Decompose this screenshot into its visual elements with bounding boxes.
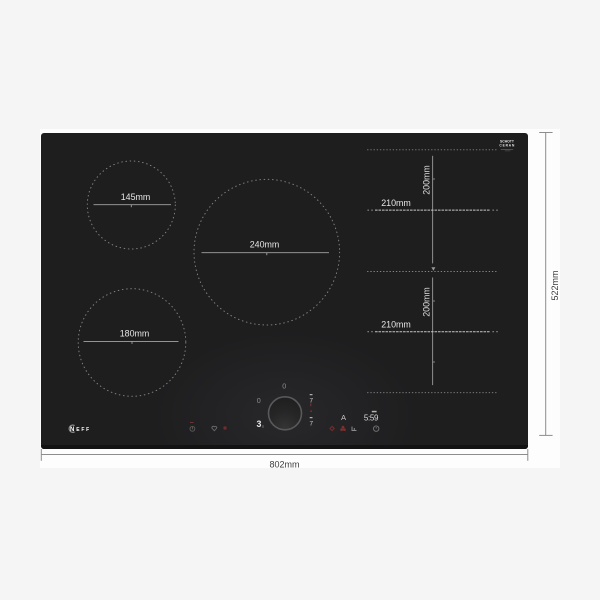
svg-text:s: s (262, 423, 264, 428)
svg-text:A: A (341, 413, 347, 422)
svg-text:3: 3 (257, 419, 262, 429)
svg-text:200mm: 200mm (421, 165, 431, 195)
svg-text:5:59: 5:59 (364, 413, 379, 422)
svg-text:210mm: 210mm (381, 198, 411, 208)
svg-text:145mm: 145mm (121, 192, 151, 202)
svg-text:7: 7 (310, 397, 314, 404)
svg-text:7: 7 (310, 420, 314, 427)
svg-text:CERAN: CERAN (499, 144, 515, 148)
svg-text:200mm: 200mm (421, 287, 431, 317)
svg-text:240mm: 240mm (250, 239, 280, 249)
svg-text:802mm: 802mm (269, 460, 299, 470)
svg-text:0: 0 (282, 381, 286, 390)
svg-text:180mm: 180mm (120, 328, 150, 338)
svg-text:EFF: EFF (76, 427, 91, 433)
svg-text:210mm: 210mm (381, 319, 411, 329)
svg-text:0: 0 (257, 396, 261, 405)
svg-text:522mm: 522mm (550, 270, 560, 300)
svg-text:N: N (70, 427, 74, 433)
